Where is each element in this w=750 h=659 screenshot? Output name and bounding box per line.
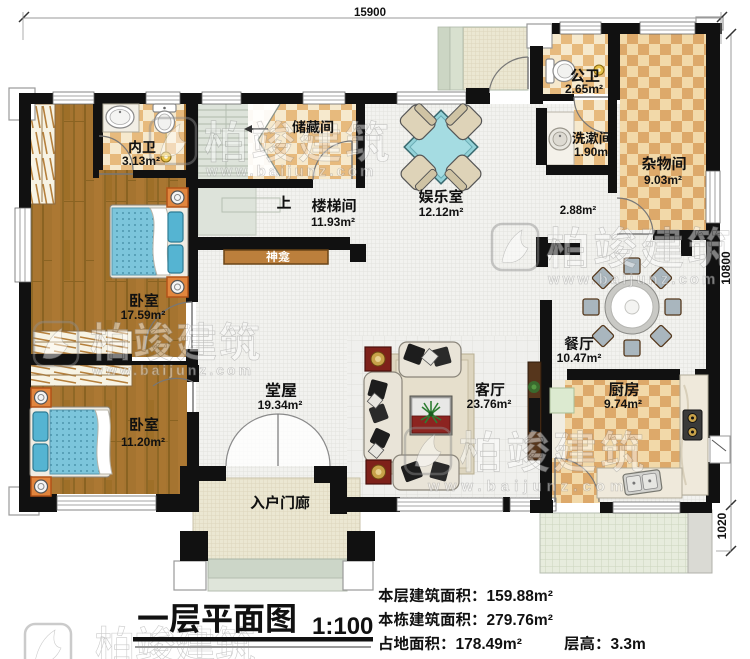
svg-text:19.34m²: 19.34m² bbox=[258, 396, 303, 413]
svg-text:上: 上 bbox=[276, 192, 291, 213]
svg-text:www.baijunz.com: www.baijunz.com bbox=[205, 160, 376, 181]
svg-text:1020: 1020 bbox=[713, 512, 730, 539]
svg-text:www.baijunz.com: www.baijunz.com bbox=[547, 268, 718, 289]
svg-text:10800: 10800 bbox=[717, 251, 734, 285]
svg-text:11.20m²: 11.20m² bbox=[121, 433, 165, 450]
svg-text:入户门廊: 入户门廊 bbox=[250, 492, 310, 513]
svg-text:1.90m²: 1.90m² bbox=[574, 143, 612, 160]
svg-text:占地面积：178.49m²: 占地面积：178.49m² bbox=[378, 632, 522, 654]
svg-text:12.12m²: 12.12m² bbox=[419, 203, 464, 220]
svg-text:本栋建筑面积：279.76m²: 本栋建筑面积：279.76m² bbox=[378, 608, 553, 630]
svg-text:1:100: 1:100 bbox=[312, 606, 373, 641]
svg-text:卧室: 卧室 bbox=[129, 414, 159, 435]
svg-text:10.47m²: 10.47m² bbox=[557, 349, 602, 366]
svg-text:3.13m²: 3.13m² bbox=[122, 152, 160, 169]
svg-text:15900: 15900 bbox=[354, 4, 386, 20]
svg-text:9.03m²: 9.03m² bbox=[644, 171, 682, 188]
svg-text:23.76m²: 23.76m² bbox=[467, 395, 512, 412]
svg-text:柏竣建筑: 柏竣建筑 bbox=[459, 417, 647, 481]
svg-text:本层建筑面积：159.88m²: 本层建筑面积：159.88m² bbox=[378, 584, 553, 606]
svg-text:一层平面图: 一层平面图 bbox=[137, 594, 297, 640]
svg-text:储藏间: 储藏间 bbox=[292, 117, 334, 137]
svg-text:17.59m²: 17.59m² bbox=[121, 306, 166, 323]
svg-text:2.65m²: 2.65m² bbox=[565, 80, 603, 97]
svg-text:神龛: 神龛 bbox=[266, 248, 290, 265]
svg-text:www.baijunz.com: www.baijunz.com bbox=[91, 360, 254, 380]
svg-text:9.74m²: 9.74m² bbox=[604, 395, 642, 412]
svg-text:www.baijunz.com: www.baijunz.com bbox=[427, 475, 628, 496]
svg-text:2.88m²: 2.88m² bbox=[560, 202, 597, 218]
svg-text:层高：3.3m: 层高：3.3m bbox=[564, 632, 646, 654]
svg-text:11.93m²: 11.93m² bbox=[311, 213, 355, 230]
